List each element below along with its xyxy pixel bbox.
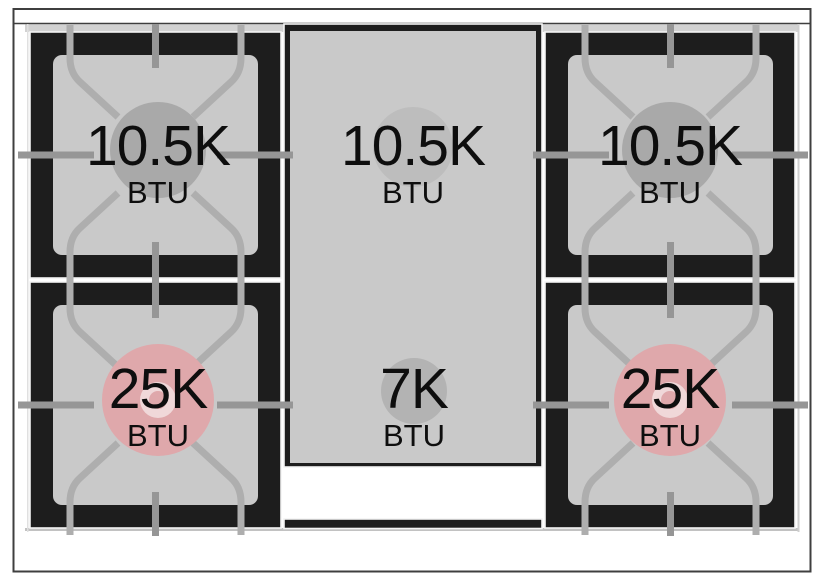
btu-value: 10.5K xyxy=(86,118,230,175)
range-top-diagram: 10.5K BTU 10.5K BTU 10.5K BTU 25K BTU xyxy=(0,0,824,584)
btu-unit-label: BTU xyxy=(109,420,207,451)
btu-unit-label: BTU xyxy=(598,177,742,208)
rim-right xyxy=(798,24,800,532)
btu-unit-label: BTU xyxy=(341,177,485,208)
btu-value: 10.5K xyxy=(341,118,485,175)
burner-rating-label: 25K BTU xyxy=(109,361,207,451)
burner-rating-label: 10.5K BTU xyxy=(598,118,742,208)
btu-unit-label: BTU xyxy=(86,177,230,208)
range-top-line-art xyxy=(0,0,824,584)
burner-rating-label: 10.5K BTU xyxy=(341,118,485,208)
burner-rating-label: 10.5K BTU xyxy=(86,118,230,208)
btu-value: 7K xyxy=(380,361,448,418)
btu-value: 10.5K xyxy=(598,118,742,175)
btu-value: 25K xyxy=(621,361,719,418)
btu-value: 25K xyxy=(109,361,207,418)
burner-rating-label: 25K BTU xyxy=(621,361,719,451)
burner-rating-label: 7K BTU xyxy=(380,361,448,451)
rim-left xyxy=(27,24,29,532)
btu-unit-label: BTU xyxy=(621,420,719,451)
griddle-front-band xyxy=(284,519,542,529)
btu-unit-label: BTU xyxy=(380,420,448,451)
